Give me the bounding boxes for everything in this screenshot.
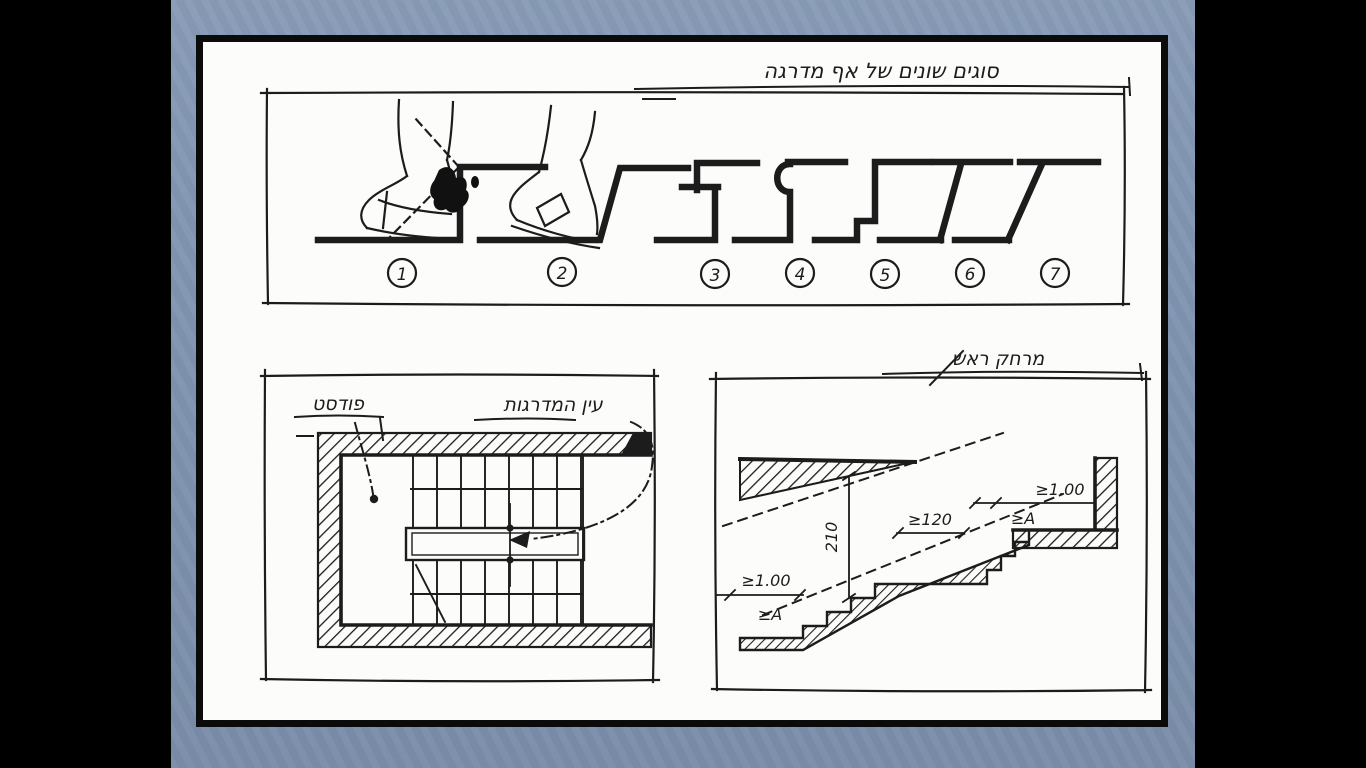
shoe-sketch [510, 106, 599, 248]
panel-caption: סוגים שונים של אף מדרגה [763, 59, 1000, 83]
stair-eye-label: עין המדרגות [503, 394, 603, 416]
stair-flight [740, 530, 1029, 650]
slide-background: סוגים שונים של אף מדרגה [171, 0, 1195, 768]
profile-numbers: 1 2 3 4 5 6 7 [388, 258, 1069, 288]
profile-number-7: 7 [1050, 265, 1061, 285]
eye-label-underline [475, 419, 575, 421]
profile-number-1: 1 [397, 265, 408, 285]
top-width-value: ≥1.00 [1035, 480, 1084, 499]
stair-section-panel: מרחק ראש 210 [710, 348, 1151, 692]
top-width-letter: ≥A [1011, 509, 1035, 528]
profile-number-3: 3 [710, 266, 721, 286]
nosing-profile-3 [657, 163, 757, 240]
wall-inner-faces [341, 455, 651, 625]
profile-number-6: 6 [965, 265, 976, 285]
right-wall [1095, 458, 1117, 530]
profile-number-5: 5 [880, 266, 891, 286]
bottom-width-letter: ≥A [758, 605, 782, 624]
landing-label: פודסט [312, 393, 365, 415]
stair-treads [411, 455, 583, 625]
nosing-profile-7 [955, 162, 1098, 240]
nosing-profile-6 [880, 162, 1010, 240]
top-landing-slab [1013, 530, 1117, 548]
bottom-width-dim-line [717, 590, 805, 600]
sketch-drawing: סוגים שונים של אף מדרגה [203, 42, 1161, 720]
profile-number-2: 2 [557, 264, 568, 284]
letterbox-stage: סוגים שונים של אף מדרגה [0, 0, 1366, 768]
nosing-profile-5 [815, 162, 930, 240]
nosing-types-panel: סוגים שונים של אף מדרגה [261, 59, 1130, 305]
landing-dim-value: ≥120 [908, 510, 952, 529]
sketch-page: סוגים שונים של אף מדרגה [196, 35, 1168, 727]
section-marker-dot [506, 556, 513, 563]
section-marker-dot [506, 524, 513, 531]
bottom-width-value: ≥1.00 [741, 571, 790, 590]
landing-leader-dot [370, 495, 378, 503]
panel-frame [261, 87, 1129, 305]
section-caption: מרחק ראש [952, 348, 1046, 370]
profile-number-4: 4 [795, 265, 806, 285]
nosing-profile-4 [735, 162, 845, 240]
upper-flight-slab [740, 459, 913, 500]
headroom-dim-value: 210 [822, 522, 841, 553]
stair-plan-panel: פודסט עין המדרגות [261, 370, 659, 682]
